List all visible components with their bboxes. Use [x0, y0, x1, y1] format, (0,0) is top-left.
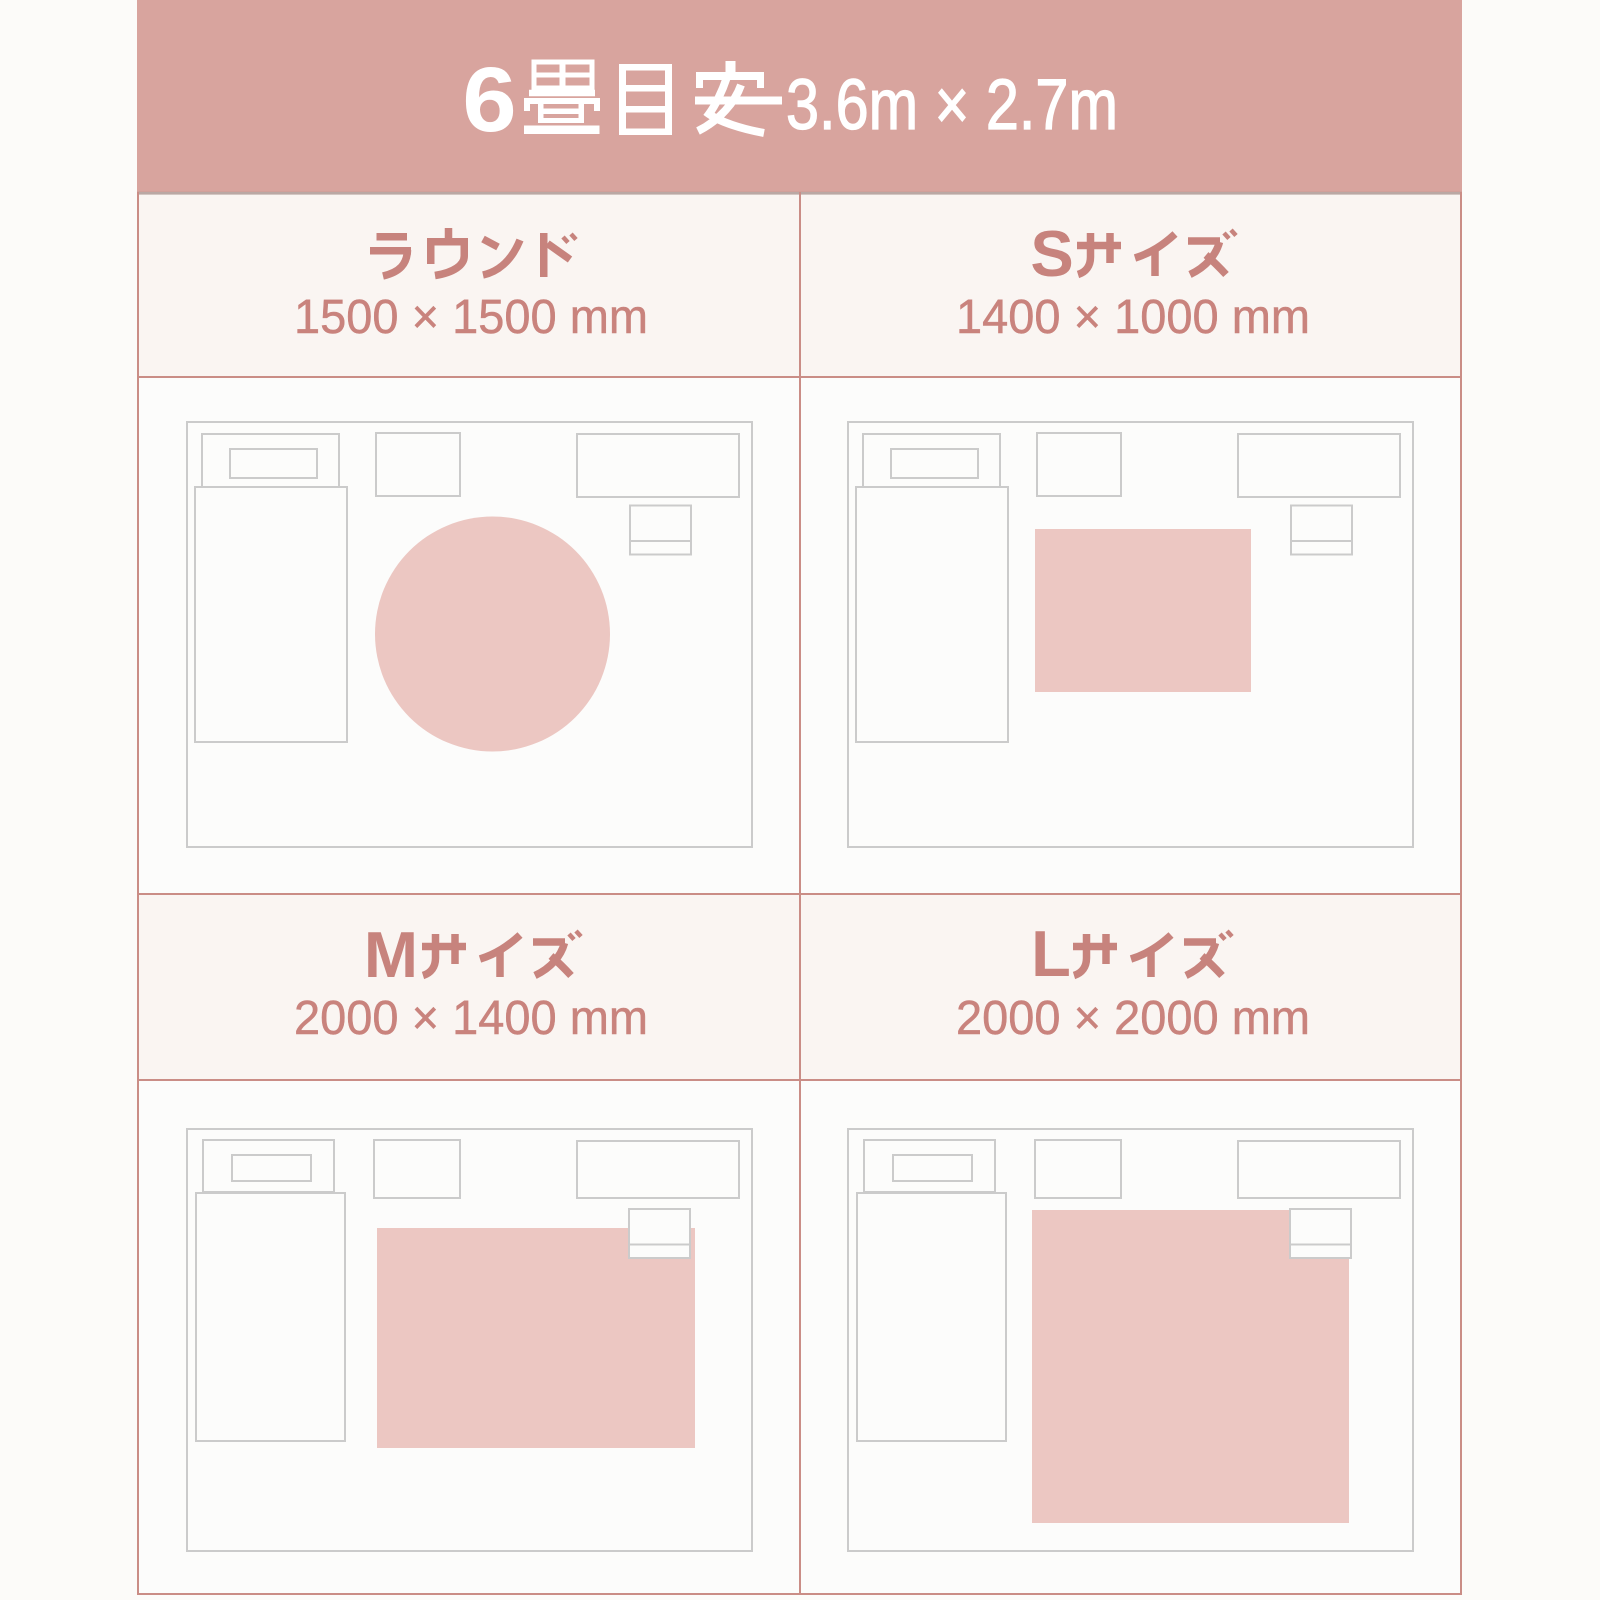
svg-text:M: M — [364, 918, 418, 991]
svg-text:1500 × 1500 mm: 1500 × 1500 mm — [294, 290, 648, 344]
svg-text:1400 × 1000 mm: 1400 × 1000 mm — [956, 290, 1310, 344]
svg-text:L: L — [1031, 917, 1071, 990]
svg-text:2000 × 2000 mm: 2000 × 2000 mm — [956, 991, 1310, 1045]
svg-text:6: 6 — [462, 49, 516, 152]
svg-text:3.6m × 2.7m: 3.6m × 2.7m — [786, 66, 1118, 145]
svg-text:2000 × 1400 mm: 2000 × 1400 mm — [294, 991, 648, 1045]
svg-text:S: S — [1030, 217, 1073, 290]
